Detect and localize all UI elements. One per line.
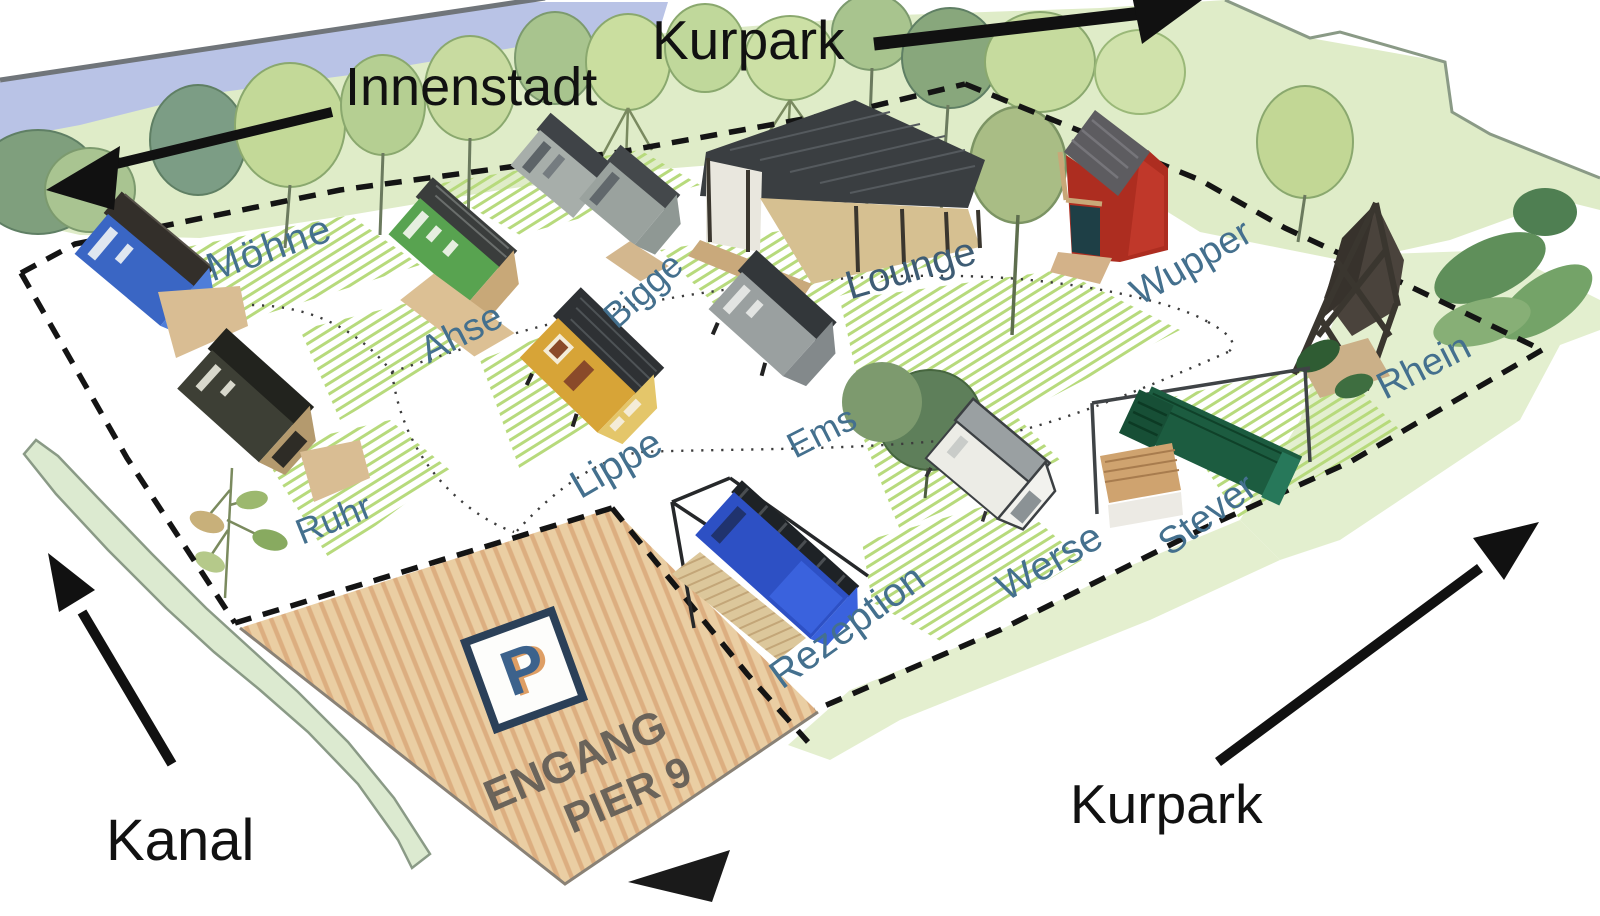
svg-text:Kanal: Kanal — [106, 808, 254, 873]
svg-text:Innenstadt: Innenstadt — [345, 57, 597, 117]
svg-text:Kurpark: Kurpark — [1070, 773, 1263, 835]
svg-text:Kurpark: Kurpark — [652, 9, 845, 71]
